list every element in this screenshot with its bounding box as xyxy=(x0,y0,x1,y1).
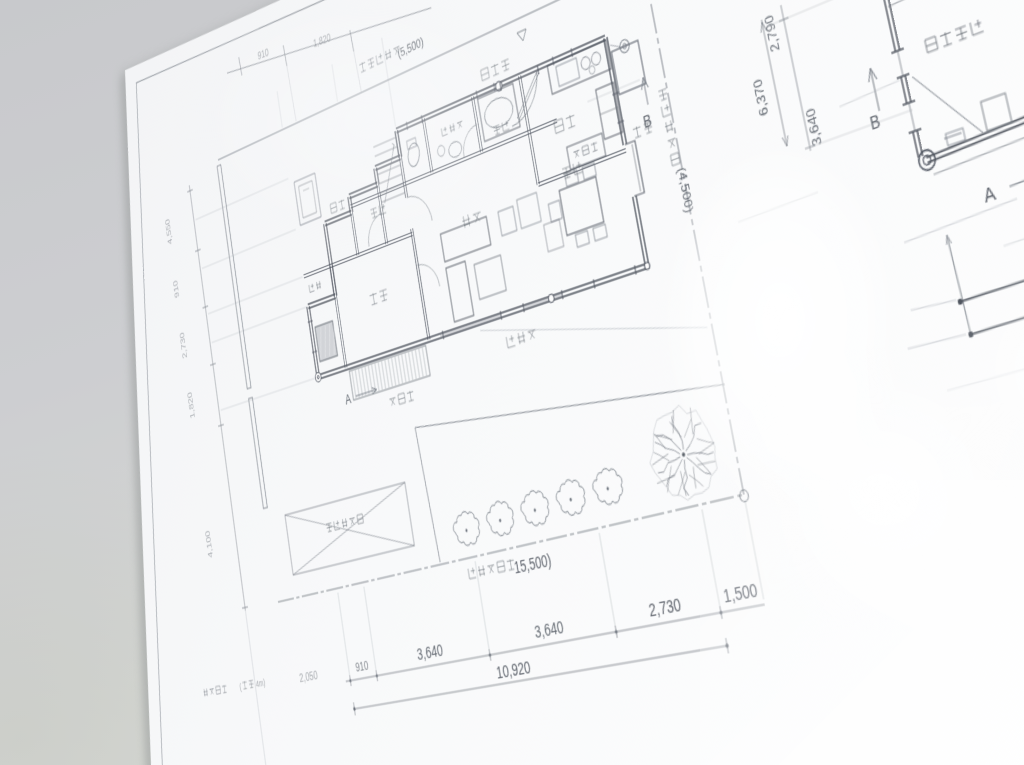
svg-text:910: 910 xyxy=(354,658,369,675)
svg-text:4m): 4m) xyxy=(255,679,265,690)
